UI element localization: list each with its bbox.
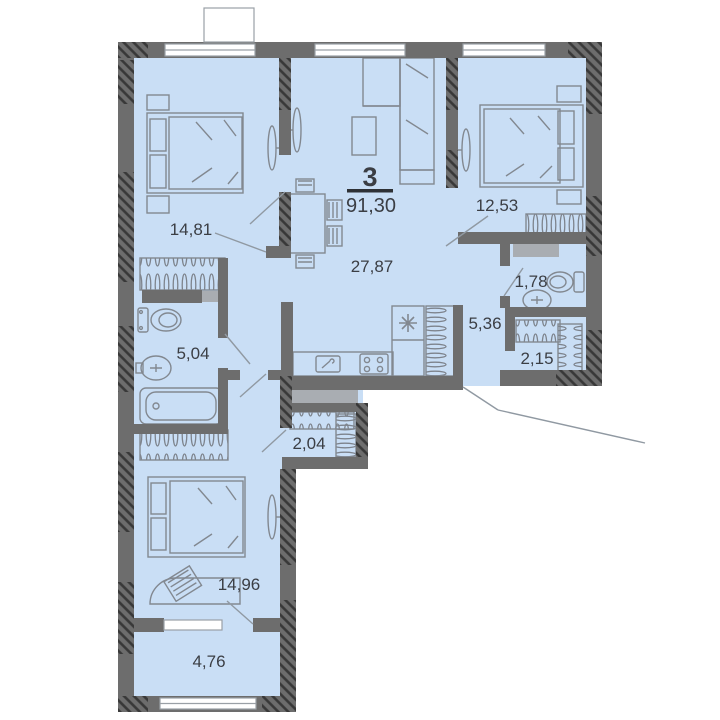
room-area-label: 2,04 — [292, 434, 325, 453]
floor-plan: 14,81 12,53 27,87 5,36 1,78 2,15 5,04 2,… — [0, 0, 720, 720]
wardrobe-icon — [516, 320, 560, 342]
wardrobe-icon — [558, 324, 582, 372]
room-area-label: 4,76 — [192, 652, 225, 671]
window-icon — [463, 44, 545, 56]
wardrobe-icon — [140, 430, 228, 460]
room-area-label: 14,81 — [170, 220, 213, 239]
apartment-total-area: 91,30 — [346, 195, 396, 217]
room-area-label: 5,04 — [176, 344, 209, 363]
window-icon — [165, 44, 255, 56]
window-icon — [160, 698, 256, 709]
apartment-number: 3 — [362, 162, 377, 192]
room-area-label: 14,96 — [218, 575, 261, 594]
floor-plan-canvas: 14,81 12,53 27,87 5,36 1,78 2,15 5,04 2,… — [0, 0, 720, 720]
room-area-label: 5,36 — [468, 314, 501, 333]
vent-shaft — [204, 8, 254, 42]
room-area-label: 27,87 — [351, 257, 394, 276]
wardrobe-icon — [426, 306, 456, 376]
room-area-label: 12,53 — [476, 196, 519, 215]
window-icon — [315, 44, 405, 56]
wardrobe-icon — [526, 214, 586, 234]
wardrobe-icon — [140, 258, 225, 290]
room-area-label: 2,15 — [520, 349, 553, 368]
wardrobe-icon — [336, 414, 356, 457]
balcony-window-icon — [164, 620, 222, 630]
summary-divider — [347, 189, 393, 193]
room-area-label: 1,78 — [514, 272, 547, 291]
